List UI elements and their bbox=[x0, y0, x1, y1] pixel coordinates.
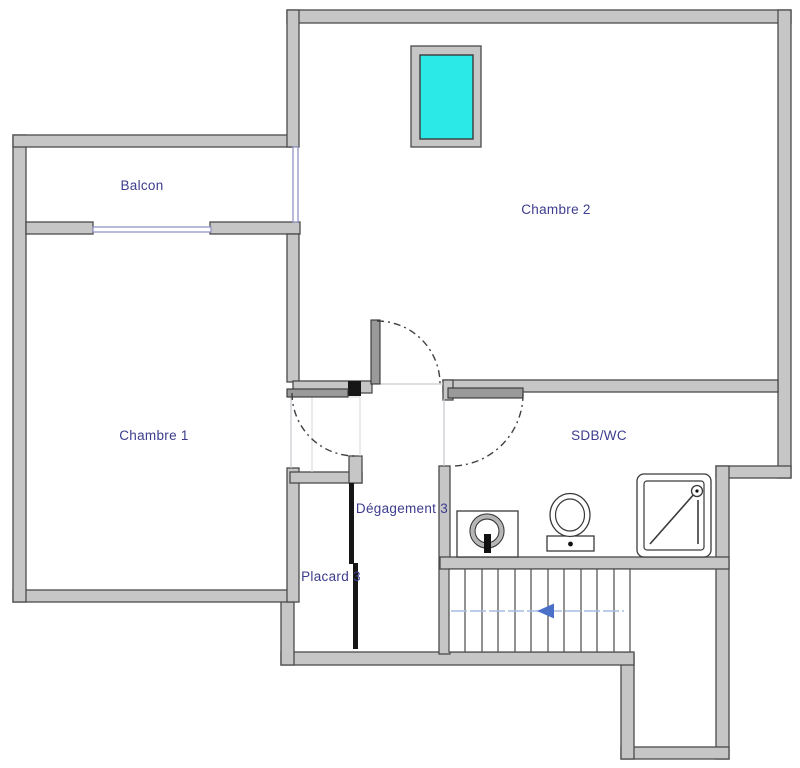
wall-bottom-middle bbox=[281, 652, 634, 665]
room-label-balcon: Balcon bbox=[120, 178, 163, 193]
placard-sliding-door-panel-1 bbox=[349, 483, 354, 564]
toilet-icon bbox=[547, 494, 594, 552]
sdb-door-leaf bbox=[448, 388, 523, 398]
wall-chambre2-top bbox=[287, 10, 791, 23]
chambre1-door-swing-arc bbox=[292, 393, 355, 456]
balcony-door-window-icon bbox=[293, 147, 298, 222]
wall-bottom-right bbox=[621, 747, 729, 759]
wall-placard-stub bbox=[349, 456, 362, 483]
floor-plan-canvas: Balcon Chambre 1 Chambre 2 SDB/WC Dégage… bbox=[0, 0, 800, 768]
chambre1-door-hinge bbox=[348, 381, 361, 396]
wall-left-outer bbox=[13, 135, 26, 602]
chambre1-door-leaf bbox=[287, 389, 348, 397]
bathroom-fixtures bbox=[457, 474, 711, 557]
degagement-door-leaf bbox=[371, 320, 380, 384]
floor-plan: Balcon Chambre 1 Chambre 2 SDB/WC Dégage… bbox=[0, 0, 800, 768]
wall-right-lower bbox=[716, 466, 729, 759]
room-label-degagement: Dégagement 3 bbox=[356, 501, 448, 516]
wall-sdb-bottom bbox=[440, 557, 729, 569]
stairs bbox=[449, 569, 630, 652]
velux-window-icon bbox=[411, 46, 481, 147]
velux-glass bbox=[420, 55, 473, 139]
sdb-door-swing-arc bbox=[451, 394, 523, 466]
wall-chambre2-west bbox=[287, 10, 299, 147]
room-label-placard: Placard 3 bbox=[301, 569, 361, 584]
wall-balcon-bottom-left bbox=[26, 222, 93, 234]
wall-landing-left bbox=[621, 654, 634, 759]
wall-balcon-bottom-right bbox=[210, 222, 300, 234]
wall-left-step bbox=[281, 600, 294, 665]
wall-chambre1-bottom bbox=[13, 590, 294, 602]
sink-icon bbox=[457, 511, 518, 557]
degagement-door-swing-arc bbox=[377, 321, 440, 384]
room-label-sdb-wc: SDB/WC bbox=[571, 428, 627, 443]
sink-tap bbox=[484, 534, 491, 553]
room-label-chambre2: Chambre 2 bbox=[521, 202, 590, 217]
wall-chambre1-chambre2-divider bbox=[287, 234, 299, 382]
balcon-window-icon bbox=[93, 227, 211, 232]
wall-chambre1-east-lower bbox=[287, 468, 299, 602]
shower-icon bbox=[637, 474, 711, 557]
wall-right-upper bbox=[778, 10, 791, 478]
wall-balcon-top bbox=[13, 135, 293, 147]
room-label-chambre1: Chambre 1 bbox=[119, 428, 188, 443]
